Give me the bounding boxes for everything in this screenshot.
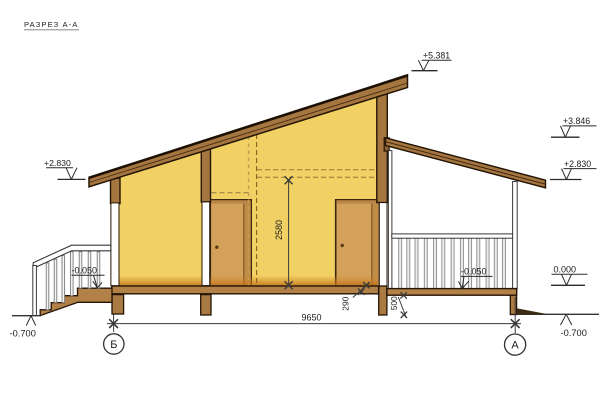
svg-text:9650: 9650 [301, 312, 321, 322]
svg-text:+2.830: +2.830 [564, 159, 591, 169]
svg-text:-0.050: -0.050 [461, 267, 487, 277]
svg-text:Б: Б [110, 339, 117, 351]
svg-text:0.000: 0.000 [554, 264, 577, 274]
svg-text:+3.846: +3.846 [563, 116, 590, 126]
svg-text:-0.050: -0.050 [72, 265, 98, 275]
svg-text:+5.381: +5.381 [423, 50, 450, 60]
svg-text:-0.700: -0.700 [561, 328, 587, 338]
svg-text:-0.700: -0.700 [10, 328, 36, 338]
svg-text:2580: 2580 [274, 220, 284, 240]
svg-text:290: 290 [341, 296, 351, 310]
svg-text:+2.830: +2.830 [44, 158, 71, 168]
svg-text:А: А [511, 340, 519, 352]
svg-text:РАЗРЕЗ А-А: РАЗРЕЗ А-А [24, 20, 78, 29]
svg-text:500: 500 [389, 296, 399, 310]
